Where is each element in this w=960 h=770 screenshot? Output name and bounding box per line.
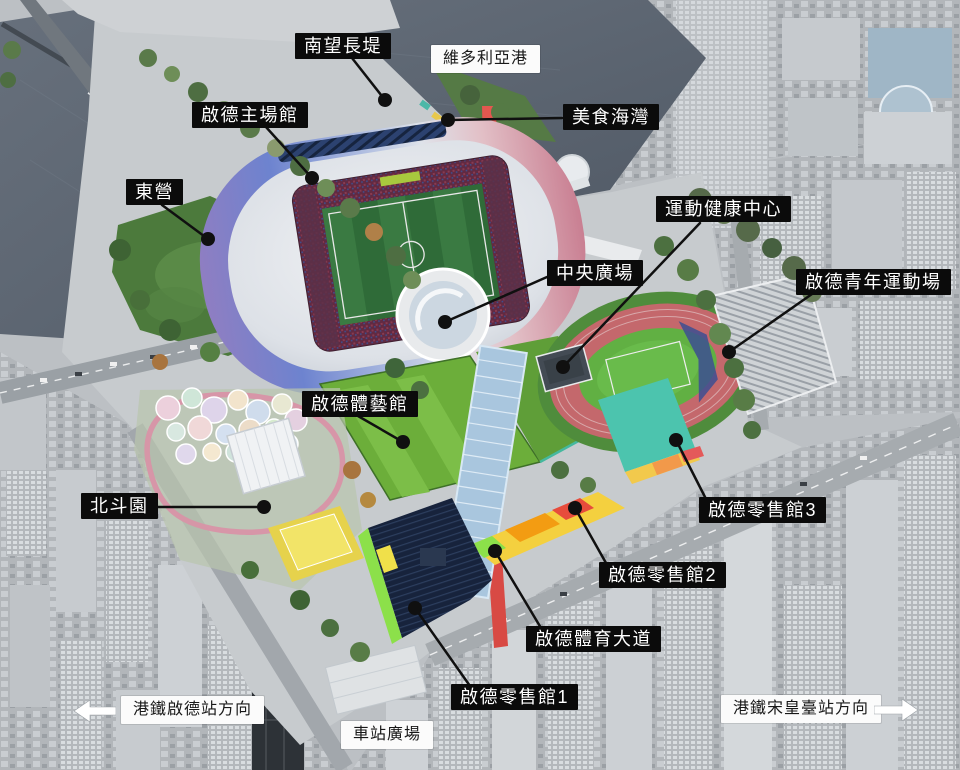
label-retail-hall-2: 啟德零售館2 [599, 562, 726, 588]
leader-dots [201, 93, 736, 615]
kai-tak-sports-park-map: 南望長堤 維多利亞港 啟德主場館 美食海灣 東營 運動健康中心 中央廣場 啟德青… [0, 0, 960, 770]
label-sports-health-centre: 運動健康中心 [656, 196, 791, 222]
label-station-square: 車站廣場 [341, 721, 433, 749]
label-east-camp: 東營 [126, 179, 183, 205]
leader-lines [158, 58, 812, 686]
label-retail-hall-1: 啟德零售館1 [451, 684, 578, 710]
label-south-breakwater: 南望長堤 [295, 33, 391, 59]
label-sports-avenue: 啟德體育大道 [526, 626, 661, 652]
label-main-stadium: 啟德主場館 [192, 102, 308, 128]
leader-lines-layer [0, 0, 960, 770]
label-arena: 啟德體藝館 [302, 391, 418, 417]
label-victoria-harbour: 維多利亞港 [431, 45, 540, 73]
label-mtr-kai-tak-direction: 港鐵啟德站方向 [121, 696, 264, 724]
label-mtr-sung-wong-toi-direction: 港鐵宋皇臺站方向 [721, 695, 881, 723]
label-north-star-park: 北斗園 [81, 493, 158, 519]
label-food-bay: 美食海灣 [563, 104, 659, 130]
label-youth-sports-ground: 啟德青年運動場 [796, 269, 951, 295]
label-central-square: 中央廣場 [547, 260, 643, 286]
label-retail-hall-3: 啟德零售館3 [699, 497, 826, 523]
